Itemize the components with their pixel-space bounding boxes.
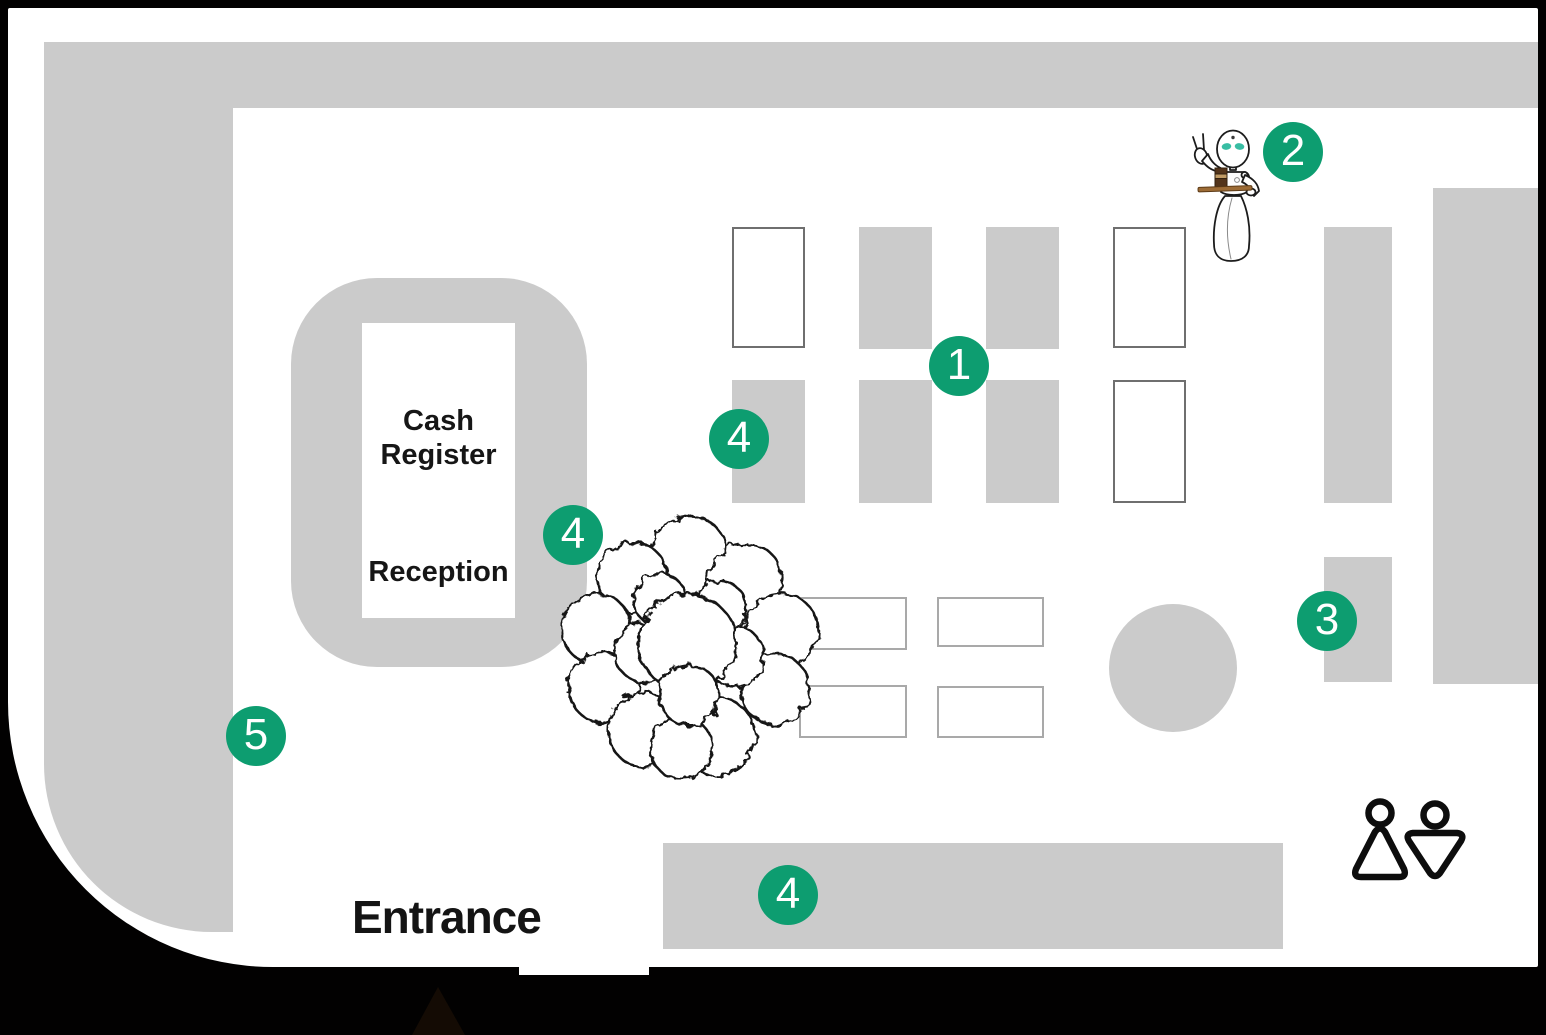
round-table <box>1109 604 1237 732</box>
marker-4-register: 4 <box>543 505 603 565</box>
left-wall <box>44 42 233 932</box>
marker-2: 2 <box>1263 122 1323 182</box>
marker-5: 5 <box>226 706 286 766</box>
small-table-2 <box>937 597 1044 647</box>
bottom-counter <box>663 843 1283 949</box>
reception-label: Reception <box>354 556 523 589</box>
restroom-icon <box>1345 795 1470 890</box>
table-row1-col3 <box>986 227 1059 349</box>
cafe-floor-plan: Cash Register Reception <box>0 0 1546 1035</box>
table-row2-col3 <box>986 380 1059 503</box>
right-kitchen-block <box>1433 188 1538 684</box>
table-row1-col2 <box>859 227 932 349</box>
marker-3: 3 <box>1297 591 1357 651</box>
service-robot-icon <box>1185 122 1275 264</box>
cash-register-label: Cash Register <box>362 404 515 472</box>
top-wall <box>233 42 1538 108</box>
marker-1: 1 <box>929 336 989 396</box>
entrance-label: Entrance <box>352 890 541 944</box>
table-row1-col4 <box>1113 227 1186 348</box>
marker-4-counter: 4 <box>758 865 818 925</box>
entrance-door-gap <box>519 960 649 975</box>
small-table-4 <box>937 686 1044 738</box>
table-row2-col4 <box>1113 380 1186 503</box>
marker-4-dining: 4 <box>709 409 769 469</box>
frame-triangle-shape <box>412 987 465 1035</box>
right-tall-bench <box>1324 227 1392 503</box>
table-row2-col2 <box>859 380 932 503</box>
table-row1-col1 <box>732 227 805 348</box>
